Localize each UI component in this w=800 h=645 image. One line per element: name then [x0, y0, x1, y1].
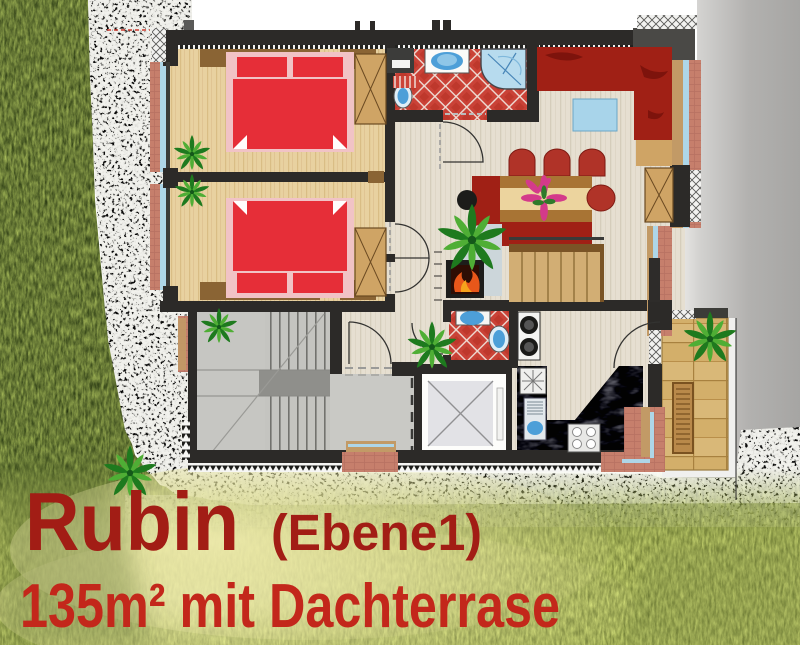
svg-text:Rubin: Rubin [25, 475, 239, 568]
svg-text:(Ebene1): (Ebene1) [271, 504, 482, 561]
svg-text:135m² mit Dachterrase: 135m² mit Dachterrase [20, 572, 560, 641]
